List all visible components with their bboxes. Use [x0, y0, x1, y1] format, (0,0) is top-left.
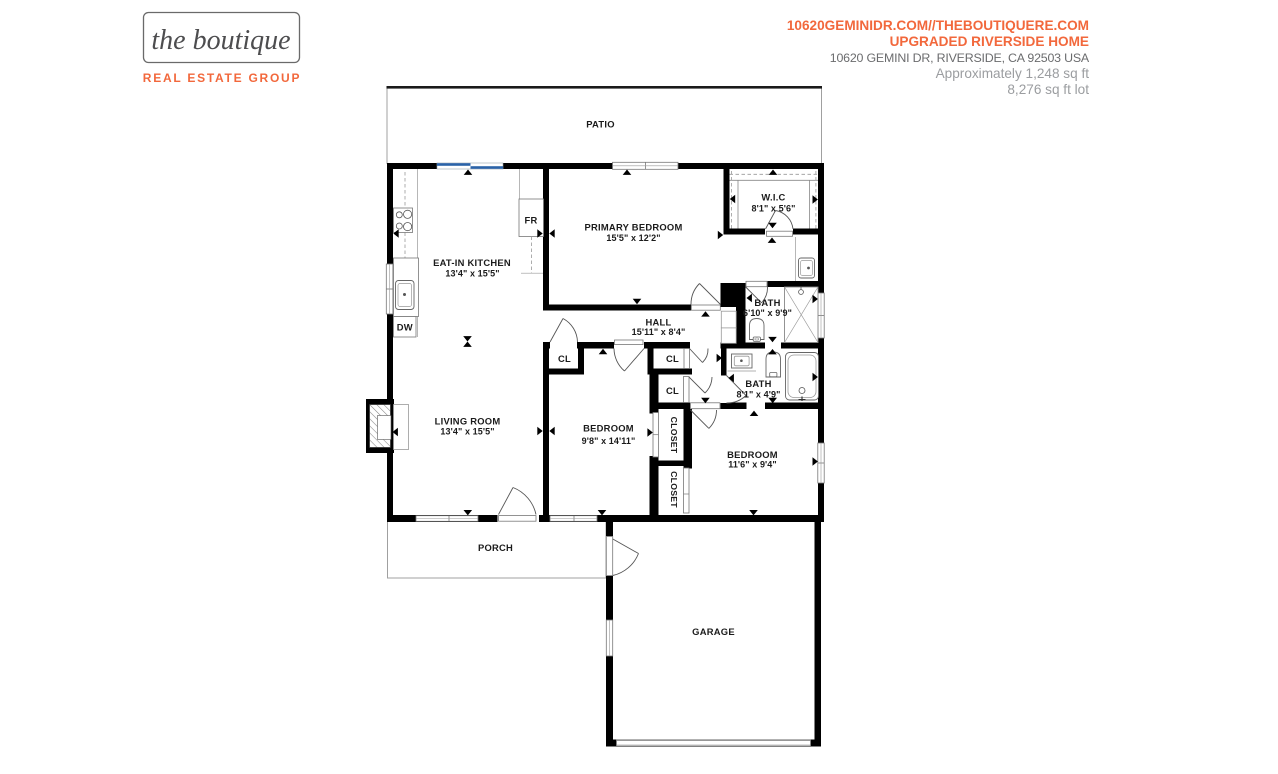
svg-text:CL: CL: [666, 353, 679, 364]
svg-text:W.I.C: W.I.C: [761, 191, 785, 202]
svg-text:10620GEMINIDR.COM//THEBOUTIQUE: 10620GEMINIDR.COM//THEBOUTIQUERE.COM: [787, 18, 1089, 33]
svg-text:EAT-IN KITCHEN: EAT-IN KITCHEN: [433, 257, 511, 268]
svg-text:13'4" x 15'5": 13'4" x 15'5": [440, 427, 494, 437]
svg-text:8'1" x 4'9": 8'1" x 4'9": [737, 390, 781, 400]
svg-text:6'10" x 9'9": 6'10" x 9'9": [743, 308, 792, 318]
svg-text:10620 GEMINI DR, RIVERSIDE, CA: 10620 GEMINI DR, RIVERSIDE, CA 92503 USA: [830, 51, 1090, 65]
svg-text:8'1" x 5'6": 8'1" x 5'6": [752, 203, 796, 213]
svg-text:HALL: HALL: [646, 317, 672, 328]
svg-text:PORCH: PORCH: [478, 542, 513, 553]
svg-text:PRIMARY BEDROOM: PRIMARY BEDROOM: [584, 222, 682, 233]
svg-text:PATIO: PATIO: [586, 118, 615, 129]
svg-text:13'4" x 15'5": 13'4" x 15'5": [445, 269, 499, 279]
svg-text:BEDROOM: BEDROOM: [583, 422, 634, 433]
svg-text:CL: CL: [666, 385, 679, 396]
svg-text:REAL ESTATE GROUP: REAL ESTATE GROUP: [143, 71, 301, 85]
svg-text:CLOSET: CLOSET: [669, 471, 679, 508]
svg-text:15'11" x 8'4": 15'11" x 8'4": [632, 327, 686, 337]
svg-text:CLOSET: CLOSET: [669, 417, 679, 454]
svg-text:BEDROOM: BEDROOM: [727, 449, 778, 460]
svg-text:UPGRADED RIVERSIDE HOME: UPGRADED RIVERSIDE HOME: [890, 34, 1089, 49]
svg-text:FR: FR: [525, 215, 538, 226]
svg-text:11'6" x 9'4": 11'6" x 9'4": [728, 460, 777, 470]
svg-text:DW: DW: [397, 322, 413, 333]
svg-text:Approximately 1,248 sq ft: Approximately 1,248 sq ft: [936, 66, 1090, 81]
svg-text:LIVING ROOM: LIVING ROOM: [435, 415, 501, 426]
svg-text:9'8" x 14'11": 9'8" x 14'11": [582, 436, 636, 446]
svg-text:CL: CL: [558, 353, 571, 364]
svg-text:BATH: BATH: [745, 378, 771, 389]
svg-text:8,276 sq ft lot: 8,276 sq ft lot: [1007, 82, 1089, 97]
svg-text:15'5" x 12'2": 15'5" x 12'2": [606, 233, 660, 243]
svg-text:the boutique: the boutique: [151, 25, 290, 56]
svg-text:GARAGE: GARAGE: [692, 626, 735, 637]
svg-text:BATH: BATH: [754, 297, 780, 308]
